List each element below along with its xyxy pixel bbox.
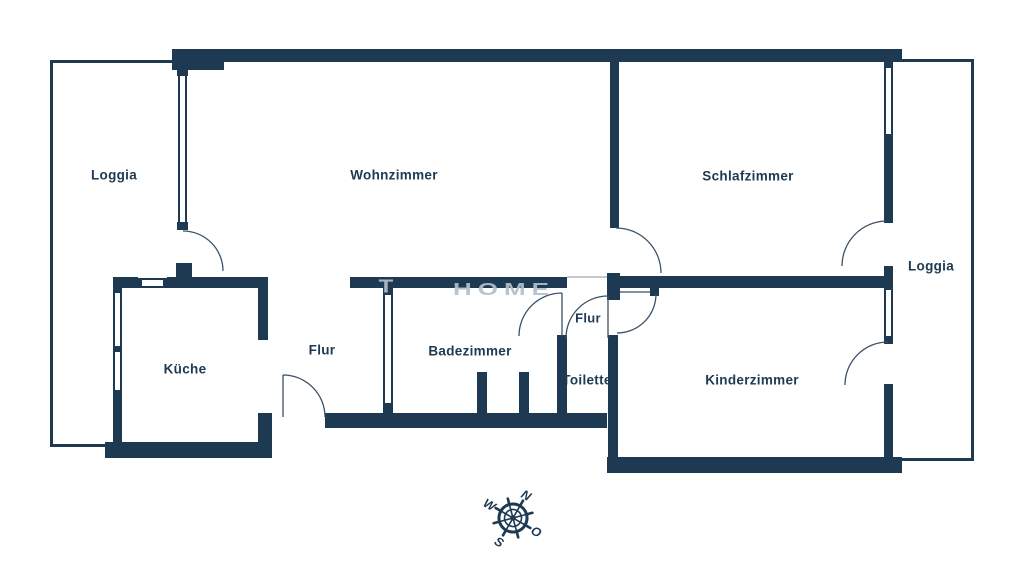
window bbox=[178, 70, 187, 230]
door-jamb-stub bbox=[176, 263, 192, 277]
room-label-badezimmer: Badezimmer bbox=[428, 344, 511, 359]
wall-segment bbox=[105, 442, 272, 458]
window-cap bbox=[113, 390, 122, 395]
compass-hub bbox=[509, 514, 517, 522]
compass-outer-ring bbox=[494, 499, 532, 537]
floor-plan: N O S W Loggia Wohnzimmer Schlafzimmer L… bbox=[0, 0, 1024, 561]
door-arc-kinderzimmer bbox=[617, 292, 656, 333]
window bbox=[884, 68, 893, 134]
compass-inner-ring bbox=[501, 506, 524, 529]
compass-rose: N O S W bbox=[467, 473, 557, 561]
window bbox=[113, 290, 122, 395]
door-arcs bbox=[183, 221, 888, 417]
wall-segment bbox=[884, 336, 893, 344]
window bbox=[383, 295, 393, 405]
room-label-flur-main: Flur bbox=[309, 343, 336, 358]
window-cap bbox=[138, 278, 142, 288]
loggia-wall bbox=[50, 60, 172, 63]
partition-stub bbox=[477, 372, 487, 413]
watermark-logo-mark: T bbox=[379, 277, 394, 298]
wall-segment bbox=[325, 413, 607, 428]
wall-segment bbox=[884, 266, 893, 290]
loggia-wall bbox=[50, 60, 53, 447]
compass-spokes bbox=[495, 500, 531, 536]
compass-letter-w: W bbox=[481, 496, 499, 515]
window-cap bbox=[163, 278, 167, 288]
watermark-text: HOME bbox=[453, 278, 555, 299]
loggia-wall bbox=[902, 59, 974, 62]
wall-segment bbox=[172, 49, 902, 62]
compass-letter-o: O bbox=[528, 523, 544, 540]
compass-points bbox=[486, 491, 541, 546]
room-label-toilette: Toilette bbox=[562, 373, 611, 388]
room-label-kueche: Küche bbox=[164, 362, 207, 377]
wall-segment bbox=[608, 287, 618, 300]
window bbox=[884, 290, 893, 336]
window-cap bbox=[113, 288, 122, 293]
compass-letter-n: N bbox=[519, 487, 535, 504]
compass-letters: N O S W bbox=[467, 473, 557, 561]
door-arc-entry bbox=[283, 375, 325, 417]
loggia-wall bbox=[902, 458, 974, 461]
wall-segment bbox=[113, 277, 138, 288]
wall-segment bbox=[610, 62, 619, 228]
room-label-wohnzimmer: Wohnzimmer bbox=[350, 168, 438, 183]
wall-segment bbox=[172, 62, 224, 70]
partition-stub bbox=[519, 372, 529, 413]
wall-segment bbox=[113, 395, 122, 450]
window-cap bbox=[383, 403, 393, 413]
window-cap bbox=[177, 222, 188, 230]
wall-segment bbox=[608, 335, 618, 460]
door-leaf-cap bbox=[650, 286, 659, 296]
window-cap bbox=[113, 346, 122, 352]
room-label-schlafzimmer: Schlafzimmer bbox=[702, 169, 793, 184]
loggia-wall bbox=[971, 59, 974, 461]
room-label-kinderzimmer: Kinderzimmer bbox=[705, 373, 799, 388]
loggia-wall bbox=[50, 444, 114, 447]
wall-segment bbox=[884, 133, 893, 223]
wall-segment bbox=[607, 457, 902, 473]
room-label-flur-small: Flur bbox=[575, 311, 601, 326]
wall-segment bbox=[258, 277, 268, 340]
compass-letter-s: S bbox=[492, 534, 507, 551]
wall-segment bbox=[167, 277, 268, 288]
room-label-loggia-right: Loggia bbox=[908, 259, 954, 274]
door-arc-kinder-loggia bbox=[845, 342, 888, 385]
window-cap bbox=[177, 70, 188, 76]
door-arc-schlafzimmer bbox=[616, 228, 661, 273]
room-label-loggia-left: Loggia bbox=[91, 168, 137, 183]
door-arc-schlaf-loggia bbox=[842, 221, 886, 266]
